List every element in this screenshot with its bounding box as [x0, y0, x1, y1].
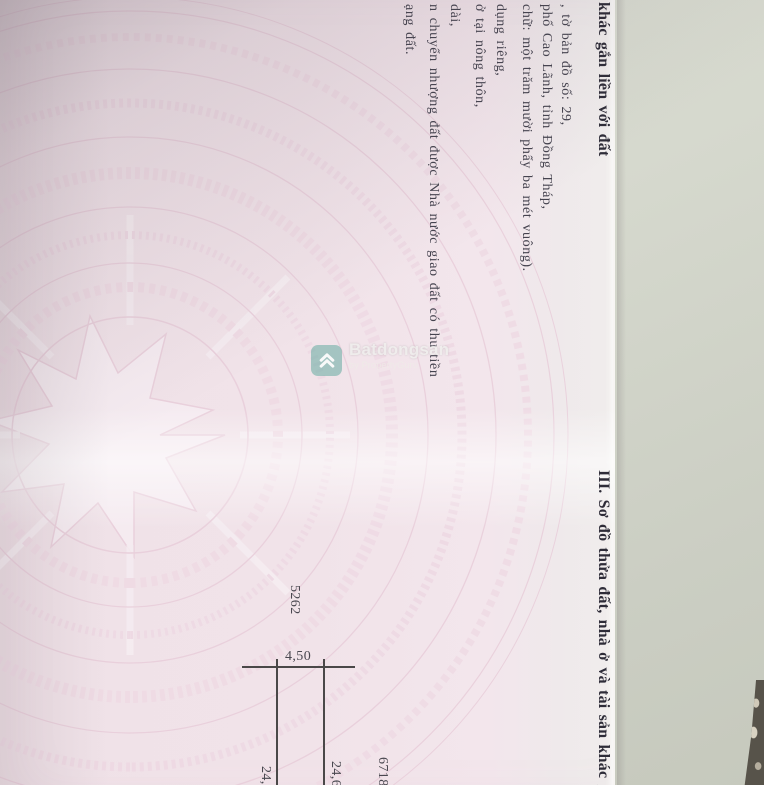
watermark-url-fragment: m.vn: [427, 343, 442, 350]
doc-line-use-form: dụng riêng,: [492, 4, 508, 76]
page-fold-crease: [0, 408, 615, 528]
watermark: Batdongsan by PropertyGuru m.vn: [311, 341, 449, 376]
section-iii-heading: III. Sơ đồ thửa đất, nhà ở và tài sản kh…: [594, 470, 612, 785]
adjacent-parcel-number-left: 5262: [286, 585, 302, 615]
doc-line-address: phố Cao Lãnh, tỉnh Đồng Tháp,: [538, 4, 554, 210]
dimension-label-side-a: 24,6: [327, 761, 343, 785]
certificate-page-rotated: khác gắn liền với đất , tờ bản đồ số: 29…: [0, 0, 764, 785]
photo-of-land-certificate: khác gắn liền với đất , tờ bản đồ số: 29…: [0, 0, 764, 785]
adjacent-parcel-number-right: 6718: [374, 757, 390, 785]
sketch-edge-line-b: [276, 659, 278, 785]
doc-line-land-type: ở tại nông thôn,: [471, 4, 487, 108]
dimension-label-top: 4,50: [285, 649, 311, 665]
doc-line-map-sheet: , tờ bản đồ số: 29,: [557, 4, 573, 126]
sketch-boundary-line: [242, 666, 355, 668]
section-ii-heading-tail: khác gắn liền với đất: [594, 2, 612, 156]
doc-line-area-words: chữ: một trăm mười phẩy ba mét vuông).: [518, 4, 534, 272]
doc-line-origin: n chuyển nhượng đất được Nhà nước giao đ…: [425, 4, 441, 377]
batdongsan-chevron-icon: [311, 345, 342, 376]
page-edge-shadow: [617, 0, 626, 785]
watermark-byline: by PropertyGuru: [349, 361, 449, 370]
doc-line-duration: dài,: [446, 4, 462, 27]
doc-line-origin-tail: ạng đất.: [401, 4, 417, 55]
dimension-label-side-b: 24,: [257, 766, 273, 785]
sketch-edge-line-a: [323, 659, 325, 785]
